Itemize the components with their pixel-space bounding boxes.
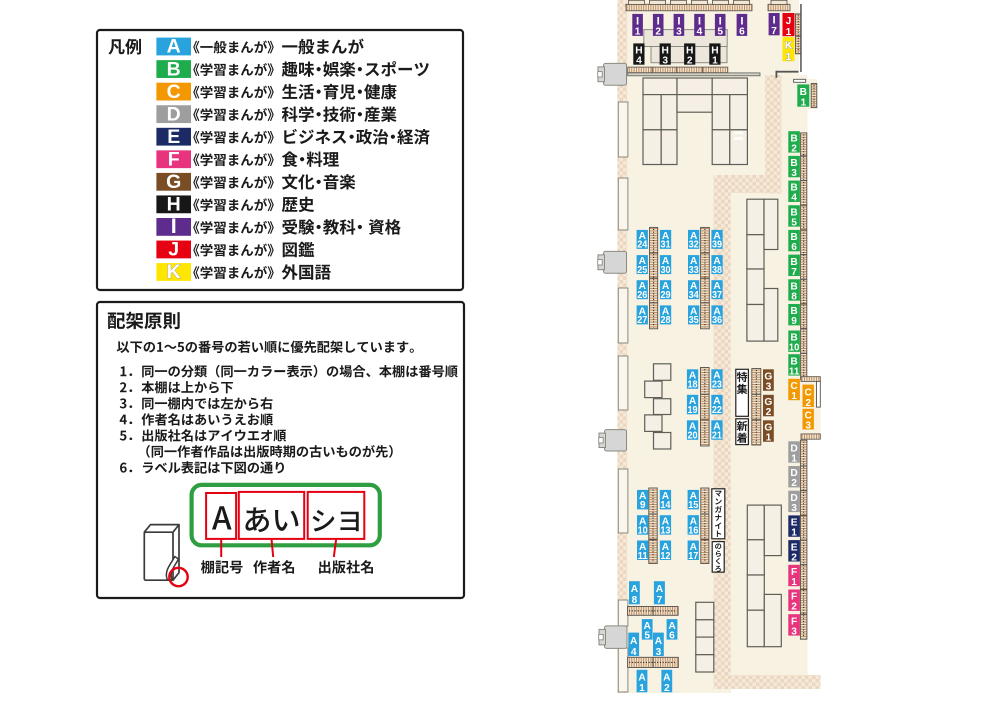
svg-text:6: 6 bbox=[791, 242, 797, 253]
svg-text:2: 2 bbox=[655, 27, 661, 38]
svg-text:23: 23 bbox=[712, 380, 722, 391]
svg-text:33: 33 bbox=[689, 265, 699, 276]
svg-text:31: 31 bbox=[661, 240, 671, 251]
svg-text:3: 3 bbox=[656, 647, 662, 658]
svg-text:2: 2 bbox=[791, 602, 797, 613]
svg-text:1: 1 bbox=[791, 453, 797, 464]
svg-text:C: C bbox=[805, 387, 813, 398]
svg-text:22: 22 bbox=[712, 405, 722, 416]
svg-text:2: 2 bbox=[791, 478, 797, 489]
svg-text:I: I bbox=[171, 214, 177, 238]
svg-text:34: 34 bbox=[689, 290, 699, 301]
svg-text:1: 1 bbox=[791, 391, 797, 402]
svg-text:I: I bbox=[677, 15, 680, 27]
svg-text:5: 5 bbox=[791, 217, 797, 228]
svg-text:6: 6 bbox=[669, 630, 675, 641]
svg-text:32: 32 bbox=[689, 240, 699, 251]
svg-text:G: G bbox=[166, 171, 181, 193]
svg-text:14: 14 bbox=[660, 500, 670, 511]
svg-text:A: A bbox=[631, 584, 639, 595]
svg-text:2: 2 bbox=[766, 407, 772, 418]
svg-text:19: 19 bbox=[688, 405, 698, 416]
svg-text:A: A bbox=[656, 584, 664, 595]
svg-text:1: 1 bbox=[635, 27, 641, 38]
svg-text:J: J bbox=[786, 16, 792, 27]
svg-text:7: 7 bbox=[791, 267, 797, 278]
svg-text:J: J bbox=[168, 239, 179, 261]
svg-text:1: 1 bbox=[766, 433, 772, 444]
svg-text:2: 2 bbox=[791, 552, 797, 563]
svg-text:A: A bbox=[663, 672, 671, 683]
svg-text:K: K bbox=[167, 261, 181, 283]
svg-text:1: 1 bbox=[800, 97, 806, 108]
svg-text:9: 9 bbox=[791, 316, 797, 327]
svg-text:1: 1 bbox=[791, 528, 797, 539]
svg-text:B: B bbox=[167, 58, 181, 80]
svg-text:H: H bbox=[167, 194, 181, 216]
svg-text:I: I bbox=[719, 15, 722, 27]
svg-text:13: 13 bbox=[660, 526, 670, 537]
svg-text:26: 26 bbox=[637, 290, 647, 301]
svg-text:E: E bbox=[167, 126, 180, 148]
svg-text:1: 1 bbox=[791, 577, 797, 588]
svg-text:I: I bbox=[773, 15, 776, 27]
svg-text:A: A bbox=[655, 636, 663, 647]
svg-text:10: 10 bbox=[789, 343, 800, 354]
svg-text:30: 30 bbox=[661, 265, 671, 276]
svg-text:9: 9 bbox=[640, 500, 646, 511]
svg-text:4: 4 bbox=[636, 55, 642, 66]
svg-text:2: 2 bbox=[664, 683, 670, 694]
svg-text:F: F bbox=[168, 148, 180, 170]
svg-text:2: 2 bbox=[805, 398, 811, 409]
svg-text:1: 1 bbox=[639, 683, 645, 694]
svg-text:4: 4 bbox=[631, 647, 637, 658]
svg-text:I: I bbox=[636, 15, 639, 27]
svg-text:D: D bbox=[167, 103, 181, 125]
svg-text:5: 5 bbox=[644, 630, 650, 641]
svg-text:2: 2 bbox=[791, 143, 797, 154]
svg-text:I: I bbox=[698, 15, 701, 27]
svg-text:7: 7 bbox=[771, 26, 777, 37]
svg-text:B: B bbox=[800, 87, 807, 98]
svg-text:8: 8 bbox=[632, 595, 638, 606]
svg-text:24: 24 bbox=[637, 240, 647, 251]
svg-text:1: 1 bbox=[786, 27, 792, 38]
svg-text:3: 3 bbox=[791, 503, 797, 514]
svg-text:27: 27 bbox=[637, 315, 647, 326]
svg-text:7: 7 bbox=[657, 595, 663, 606]
svg-text:3: 3 bbox=[791, 168, 797, 179]
svg-text:8: 8 bbox=[791, 291, 797, 302]
svg-text:C: C bbox=[167, 81, 181, 103]
svg-text:16: 16 bbox=[688, 526, 698, 537]
svg-text:11: 11 bbox=[638, 551, 648, 562]
svg-text:29: 29 bbox=[661, 290, 671, 301]
svg-text:20: 20 bbox=[688, 431, 698, 442]
svg-text:39: 39 bbox=[712, 240, 722, 251]
svg-text:5: 5 bbox=[717, 27, 723, 38]
svg-text:1: 1 bbox=[712, 55, 718, 66]
svg-text:38: 38 bbox=[712, 265, 722, 276]
svg-text:28: 28 bbox=[661, 315, 671, 326]
svg-text:15: 15 bbox=[688, 500, 698, 511]
svg-text:25: 25 bbox=[637, 265, 647, 276]
svg-text:17: 17 bbox=[688, 551, 698, 562]
svg-text:3: 3 bbox=[791, 626, 797, 637]
svg-text:18: 18 bbox=[688, 380, 698, 391]
svg-text:37: 37 bbox=[712, 290, 722, 301]
svg-text:21: 21 bbox=[712, 431, 722, 442]
svg-text:3: 3 bbox=[805, 420, 811, 431]
svg-text:35: 35 bbox=[689, 315, 699, 326]
svg-text:I: I bbox=[657, 15, 660, 27]
svg-text:K: K bbox=[785, 41, 793, 52]
svg-text:4: 4 bbox=[697, 27, 703, 38]
svg-text:3: 3 bbox=[766, 382, 772, 393]
svg-text:3: 3 bbox=[676, 27, 682, 38]
svg-text:36: 36 bbox=[712, 315, 722, 326]
svg-text:A: A bbox=[167, 36, 181, 58]
svg-text:1: 1 bbox=[786, 52, 792, 63]
svg-text:11: 11 bbox=[789, 366, 800, 377]
svg-text:4: 4 bbox=[791, 193, 797, 204]
svg-text:10: 10 bbox=[638, 526, 648, 537]
svg-text:12: 12 bbox=[660, 551, 670, 562]
svg-text:2: 2 bbox=[687, 55, 693, 66]
svg-text:I: I bbox=[740, 15, 743, 27]
svg-text:3: 3 bbox=[662, 55, 668, 66]
svg-text:A: A bbox=[630, 636, 638, 647]
svg-text:6: 6 bbox=[739, 27, 745, 38]
svg-text:A: A bbox=[638, 672, 646, 683]
